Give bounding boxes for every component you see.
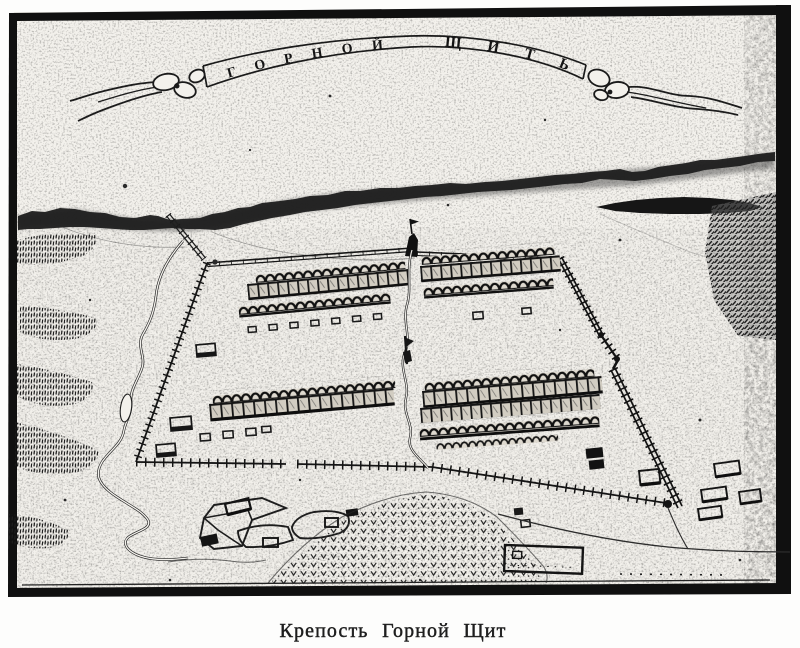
svg-text:Крепость Горной Щит: Крепость Горной Щит bbox=[280, 620, 507, 642]
